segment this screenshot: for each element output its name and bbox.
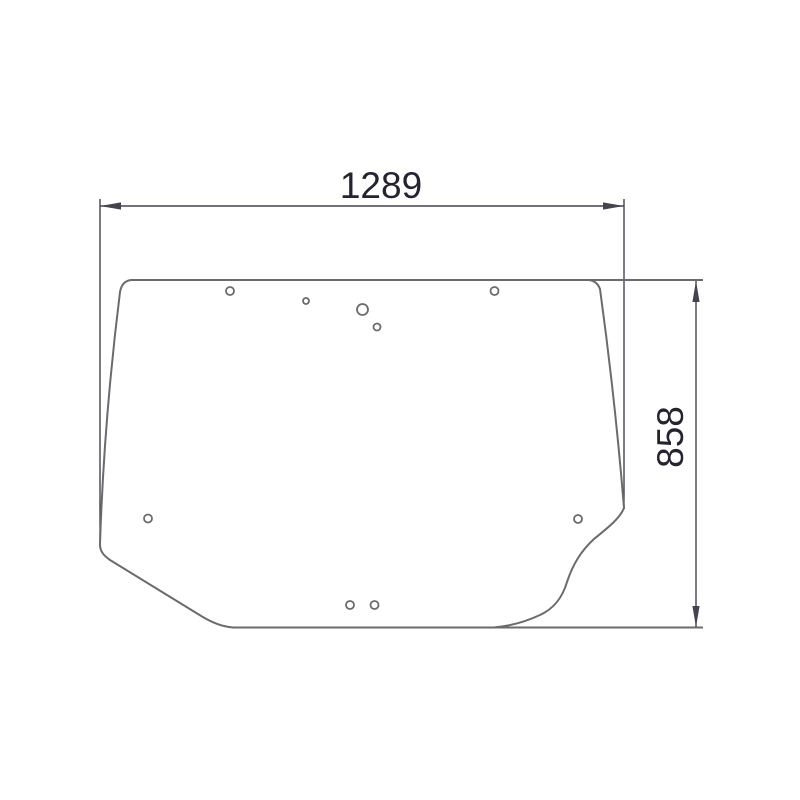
mounting-hole — [346, 601, 354, 609]
width-dimension: 1289 — [100, 165, 624, 210]
width-dimension-label: 1289 — [340, 165, 422, 206]
height-dimension: 858 — [650, 281, 700, 627]
mounting-hole — [574, 515, 582, 523]
mounting-hole — [303, 298, 309, 304]
technical-drawing-canvas: 1289 858 — [0, 0, 800, 800]
arrowhead-down — [692, 606, 699, 627]
height-dimension-label: 858 — [650, 406, 691, 468]
drawing-page: 1289 858 — [0, 0, 800, 800]
arrowhead-left — [100, 202, 121, 209]
mounting-hole — [374, 324, 381, 331]
mounting-hole — [144, 515, 152, 523]
panel-outline — [100, 280, 624, 628]
mounting-hole — [491, 287, 499, 295]
mounting-hole — [357, 304, 368, 315]
mounting-hole — [371, 601, 379, 609]
arrowhead-right — [603, 202, 624, 209]
arrowhead-up — [692, 281, 699, 302]
mounting-hole — [226, 287, 234, 295]
